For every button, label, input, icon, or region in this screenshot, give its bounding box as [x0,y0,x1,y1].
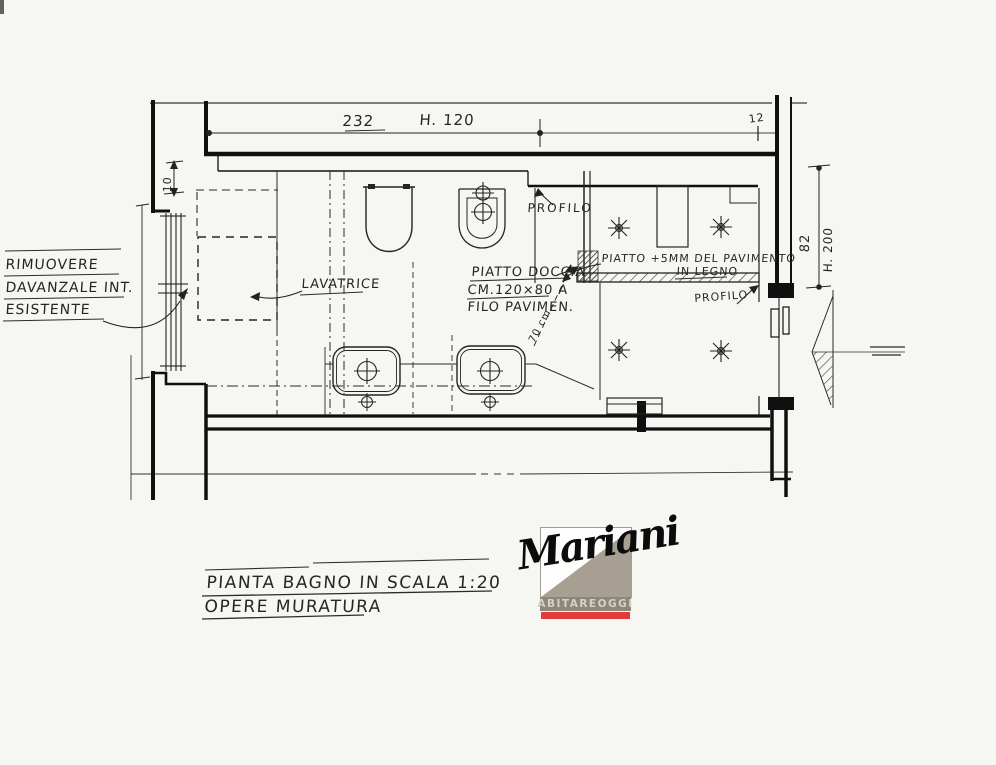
drain-icon [471,200,495,224]
label-profilo-right: PROFILO [694,289,749,304]
basin-right [457,346,525,411]
scan-edge-mark [0,0,4,14]
supply-icon [481,393,499,411]
basin-left [333,347,400,411]
drawing-title-line1: PIANTA BAGNO IN SCALA 1:20 [206,575,502,592]
counter-lines [325,347,594,415]
label-washing-machine: LAVATRICE [301,278,381,291]
dim-recess-10: 10 [162,176,173,193]
note-rimuovere-line2: DAVANZALE INT. [5,281,134,295]
logo-tagline: ABITAREOGGI [537,598,633,610]
logo-red-stripe [541,612,630,619]
drawing-title-line2: OPERE MURATURA [204,599,383,616]
note-rimuovere-line3: ESISTENTE [5,303,91,317]
floor-plan-sheet: RIMUOVERE DAVANZALE INT. ESISTENTE 232 H… [0,0,996,765]
bidet [459,182,505,248]
note-wood-floor-line2: IN LEGNO [676,266,738,277]
drain-icon [354,358,380,384]
washing-machine [198,237,277,320]
dim-width-82: 82 [799,233,812,252]
dim-height-200: H. 200 [822,227,834,273]
note-shower-line3: FILO PAVIMEN. [467,301,574,314]
dim-height-120: H. 120 [419,113,475,128]
plan-linework [0,0,996,765]
dim-width-232: 232 [342,114,375,129]
dim-gap-12: 12 [748,112,765,125]
note-wood-floor-line1: PIATTO +5MM DEL PAVIMENTO [601,253,796,264]
note-shower-line1: PIATTO DOCCIA [471,266,586,279]
drain-icon [477,358,503,384]
ceiling-light-icons [608,216,732,362]
dimension-lines [135,119,831,380]
label-profilo-top: PROFILO [527,202,593,214]
logo-tagline-bar: ABITAREOGGI [540,597,631,611]
supply-icon [358,393,376,411]
toilet [363,184,415,252]
note-rimuovere-line1: RIMUOVERE [5,258,99,272]
note-shower-line2: CM.120×80 A [467,284,569,297]
door-section-symbol [812,290,905,408]
